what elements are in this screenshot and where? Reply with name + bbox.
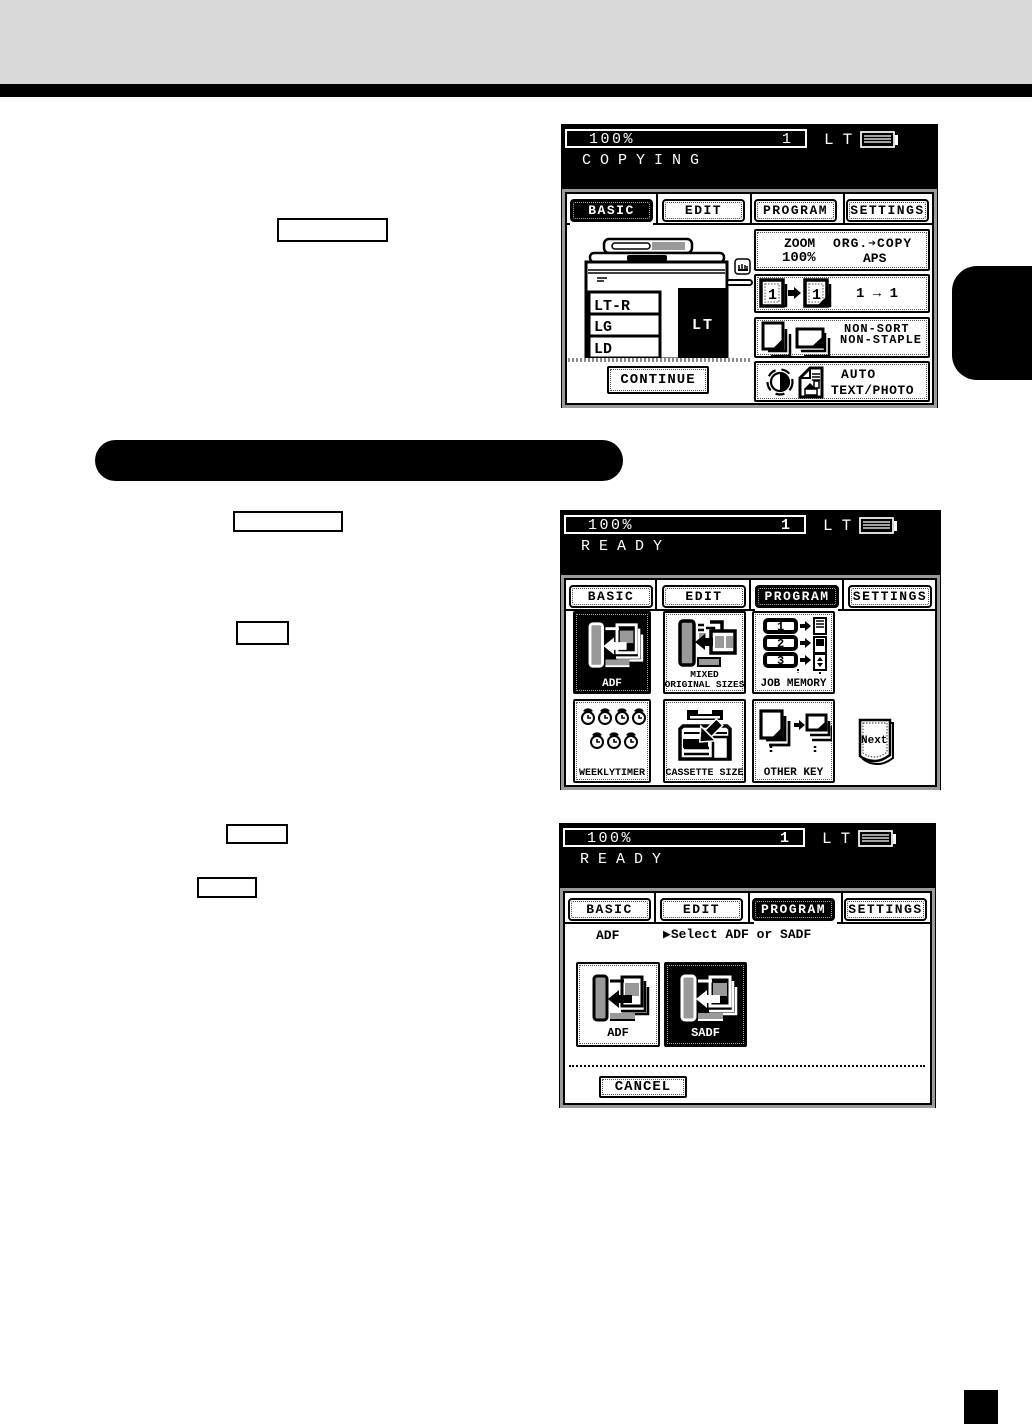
svg-text:LT: LT <box>692 317 714 334</box>
svg-text:Next: Next <box>861 735 887 747</box>
svg-text:LG: LG <box>594 319 612 336</box>
svg-text:1: 1 <box>812 287 821 304</box>
svg-text:3: 3 <box>777 654 784 668</box>
svg-text:LD: LD <box>594 341 612 358</box>
svg-text:1: 1 <box>777 620 784 634</box>
svg-text:LT-R: LT-R <box>594 298 630 315</box>
svg-text:1: 1 <box>768 287 777 304</box>
svg-text:2: 2 <box>777 637 784 651</box>
